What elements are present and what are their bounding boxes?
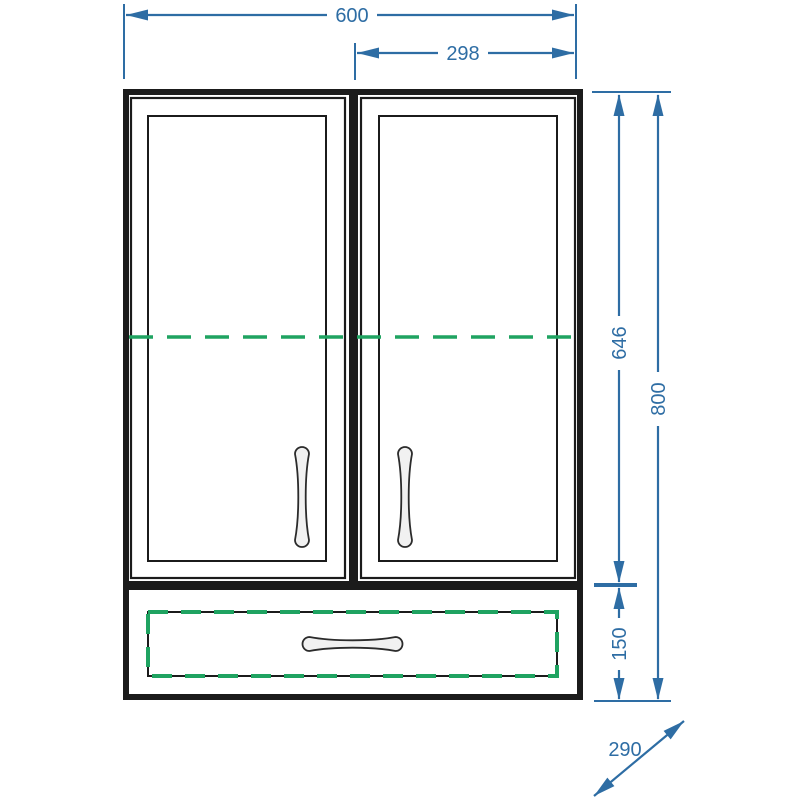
door-width-label: 298 [446,43,479,65]
overall-width-label: 600 [335,5,368,27]
arrow-down-icon [614,561,625,583]
arrow-up-icon [614,587,625,609]
arrow-down-icon [653,678,664,700]
door-height-label: 646 [609,326,631,359]
arrow-right-icon [552,48,574,59]
arrow-left-icon [357,48,379,59]
cabinet-body [126,92,580,697]
drawing-canvas: 600 298 646 800 150 290 [0,0,800,800]
dimension-overall-width: 600 [126,4,574,27]
overall-height-label: 800 [648,382,670,415]
dimension-door-height: 646 [608,94,631,583]
dimension-drawer-height: 150 [608,587,631,700]
arrow-left-icon [126,10,148,21]
arrow-down-icon [614,678,625,700]
center-stile [349,95,358,582]
dimension-overall-height: 800 [647,94,670,700]
dimension-depth: 290 [590,717,687,800]
drawer-rail [126,581,580,590]
depth-label: 290 [608,739,641,761]
dimension-door-width: 298 [357,42,574,65]
arrow-up-icon [653,94,664,116]
arrow-up-icon [614,94,625,116]
arrow-right-icon [552,10,574,21]
drawer-height-label: 150 [609,627,631,660]
cabinet-dimension-drawing: 600 298 646 800 150 290 [0,0,800,800]
